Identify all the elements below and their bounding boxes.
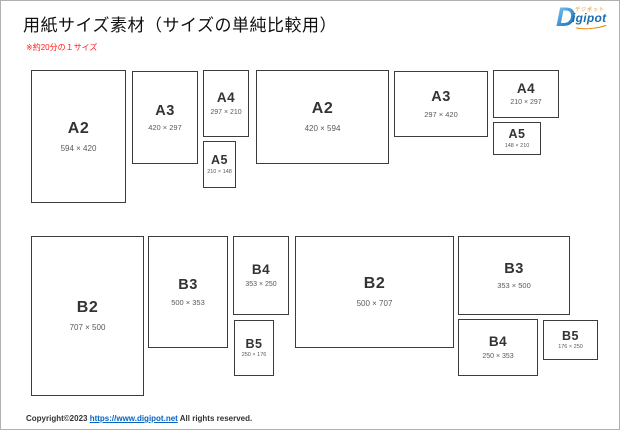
paper-a2-landscape: A2 420 × 594 <box>256 70 389 164</box>
paper-a3-landscape: A3 297 × 420 <box>394 71 488 137</box>
paper-a4-portrait: A4 297 × 210 <box>203 70 249 137</box>
paper-size-label: A5 <box>211 154 228 167</box>
paper-b2-landscape: B2 500 × 707 <box>295 236 454 348</box>
copyright-suffix: All rights reserved. <box>178 414 252 423</box>
paper-size-label: A4 <box>217 91 235 105</box>
paper-b4-portrait: B4 353 × 250 <box>233 236 289 315</box>
paper-size-label: B5 <box>246 338 263 351</box>
page-title: 用紙サイズ素材（サイズの単純比較用） <box>23 11 337 36</box>
paper-size-label: A3 <box>431 90 451 105</box>
paper-dimensions: 353 × 250 <box>245 281 276 288</box>
paper-dimensions: 250 × 353 <box>482 353 513 360</box>
paper-b3-portrait: B3 500 × 353 <box>148 236 228 348</box>
paper-a2-portrait: A2 594 × 420 <box>31 70 126 203</box>
paper-size-label: B5 <box>562 330 579 343</box>
digipot-link[interactable]: https://www.digipot.net <box>90 414 178 423</box>
paper-b5-portrait: B5 250 × 176 <box>234 320 274 376</box>
paper-dimensions: 297 × 420 <box>424 111 458 119</box>
paper-size-label: B2 <box>364 276 385 292</box>
paper-size-label: A5 <box>509 128 526 141</box>
paper-b5-landscape: B5 176 × 250 <box>543 320 598 360</box>
paper-dimensions: 420 × 297 <box>148 124 182 132</box>
paper-size-sheet: 用紙サイズ素材（サイズの単純比較用） ※約20分の１サイズ D デジポット ig… <box>0 0 620 430</box>
paper-size-label: A4 <box>517 82 535 96</box>
paper-size-label: B3 <box>178 278 198 293</box>
paper-dimensions: 500 × 353 <box>171 299 205 307</box>
paper-dimensions: 250 × 176 <box>242 353 267 359</box>
paper-dimensions: 210 × 148 <box>207 170 232 176</box>
paper-dimensions: 594 × 420 <box>61 145 97 153</box>
paper-dimensions: 420 × 594 <box>305 125 341 133</box>
paper-a3-portrait: A3 420 × 297 <box>132 71 198 164</box>
paper-a5-portrait: A5 210 × 148 <box>203 141 236 188</box>
paper-dimensions: 707 × 500 <box>70 324 106 332</box>
digipot-logo: D デジポット igipot <box>556 3 618 35</box>
scale-note: ※約20分の１サイズ <box>26 42 97 53</box>
paper-dimensions: 353 × 500 <box>497 282 531 290</box>
paper-size-label: A2 <box>68 121 89 137</box>
paper-a4-landscape: A4 210 × 297 <box>493 70 559 118</box>
paper-b2-portrait: B2 707 × 500 <box>31 236 144 396</box>
paper-a5-landscape: A5 148 × 210 <box>493 122 541 155</box>
paper-size-label: A2 <box>312 101 333 117</box>
paper-size-label: B3 <box>504 262 524 277</box>
paper-b3-landscape: B3 353 × 500 <box>458 236 570 315</box>
paper-size-label: B2 <box>77 300 98 316</box>
paper-dimensions: 148 × 210 <box>505 144 530 150</box>
paper-dimensions: 297 × 210 <box>210 109 241 116</box>
paper-size-label: B4 <box>489 335 507 349</box>
paper-dimensions: 210 × 297 <box>510 99 541 106</box>
paper-dimensions: 176 × 250 <box>558 345 583 351</box>
paper-size-label: A3 <box>155 104 175 119</box>
copyright-prefix: Copyright©2023 <box>26 414 90 423</box>
paper-b4-landscape: B4 250 × 353 <box>458 319 538 376</box>
paper-size-label: B4 <box>252 263 270 277</box>
paper-dimensions: 500 × 707 <box>357 300 393 308</box>
copyright-footer: Copyright©2023 https://www.digipot.net A… <box>26 414 252 423</box>
